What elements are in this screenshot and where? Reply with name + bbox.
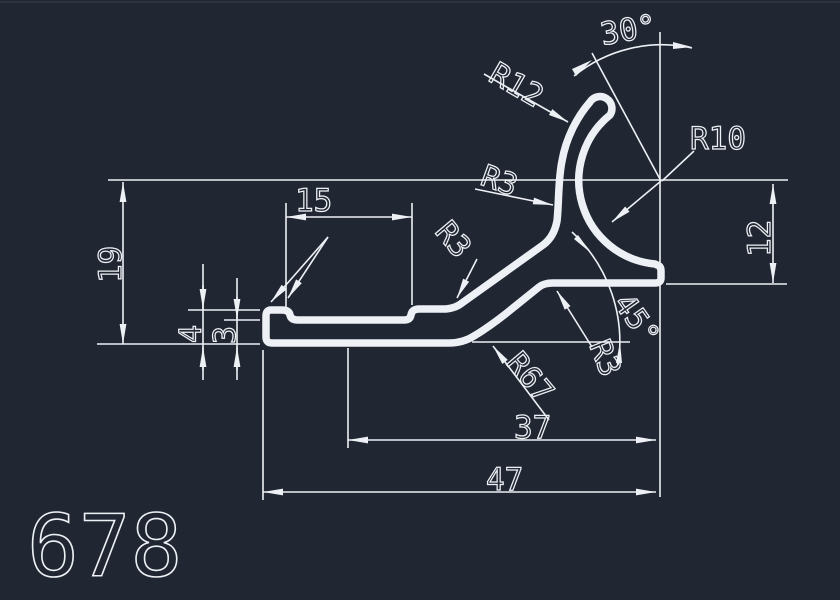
dim-label-19: 19 (93, 246, 129, 283)
profile-outline (266, 97, 661, 343)
radius-label-r67: R67 (499, 346, 561, 410)
dim-label-37: 37 (514, 410, 551, 446)
dim-label-12: 12 (742, 220, 778, 257)
radius-label-r3-inner: R3 (428, 215, 478, 265)
dim-label-3: 3 (208, 326, 243, 344)
leader-r3-web (557, 291, 592, 347)
cad-drawing: 30° R12 R10 R3 R3 45° R3 R67 15 19 4 3 1… (0, 0, 840, 600)
arrow-45deg-upper (574, 235, 591, 253)
leader-lip-corner-1 (271, 237, 328, 302)
angle-label-30: 30° (598, 8, 659, 53)
dim-label-4: 4 (174, 325, 209, 343)
dimension-texts: 30° R12 R10 R3 R3 45° R3 R67 15 19 4 3 1… (93, 8, 778, 498)
part-number: 678 (27, 497, 182, 597)
dim-label-47: 47 (486, 462, 523, 498)
leader-lip-corner-2 (288, 237, 328, 298)
radius-label-r10: R10 (690, 121, 746, 157)
leader-r10-radial (612, 181, 661, 222)
dim-label-15: 15 (295, 183, 332, 219)
extension-lines (97, 32, 788, 500)
arrow-30deg-left (572, 60, 592, 76)
cad-viewport: 30° R12 R10 R3 R3 45° R3 R67 15 19 4 3 1… (0, 0, 840, 600)
arc-30deg (574, 45, 692, 76)
